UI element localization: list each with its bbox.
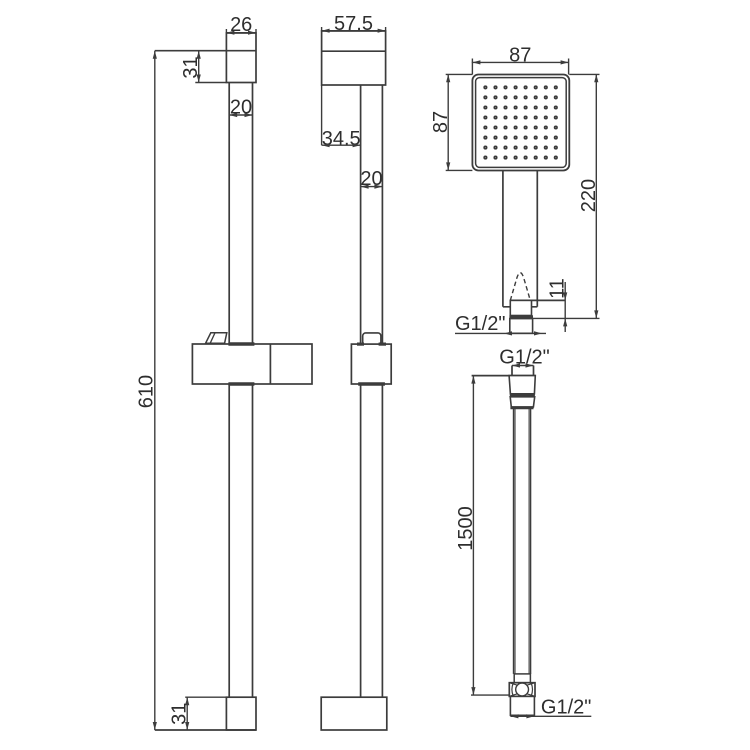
svg-text:610: 610 xyxy=(136,375,158,408)
svg-text:220: 220 xyxy=(578,179,600,212)
svg-text:31: 31 xyxy=(169,703,191,725)
svg-text:87: 87 xyxy=(430,111,452,133)
svg-text:1500: 1500 xyxy=(455,506,477,551)
svg-text:11: 11 xyxy=(547,278,569,299)
svg-text:57.5: 57.5 xyxy=(334,13,373,35)
svg-text:87: 87 xyxy=(509,45,531,67)
svg-text:26: 26 xyxy=(230,14,252,36)
svg-text:G1/2": G1/2" xyxy=(541,696,591,718)
svg-text:31: 31 xyxy=(180,56,202,78)
svg-text:G1/2": G1/2" xyxy=(455,313,505,335)
